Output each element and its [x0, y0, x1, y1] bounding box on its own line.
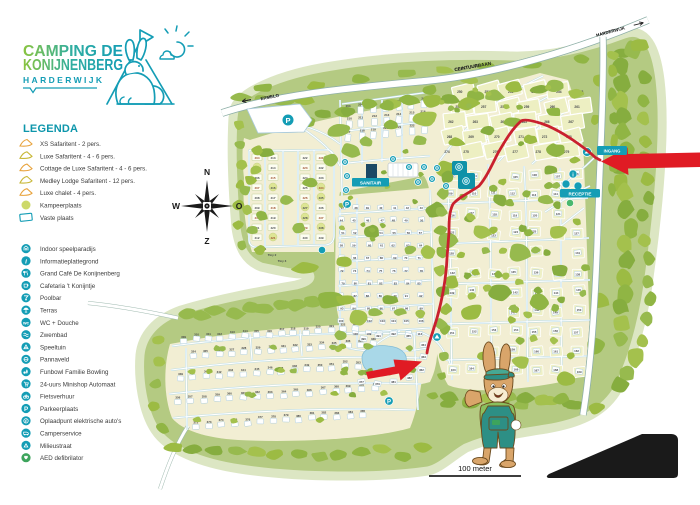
svg-text:54: 54 [379, 231, 383, 235]
svg-text:381: 381 [391, 380, 396, 384]
svg-text:59: 59 [352, 244, 356, 248]
svg-text:98: 98 [405, 307, 409, 311]
svg-text:68: 68 [380, 256, 384, 260]
svg-text:LEGENDA: LEGENDA [23, 123, 78, 135]
svg-text:365: 365 [293, 388, 298, 392]
svg-text:317: 317 [279, 327, 284, 331]
svg-text:135: 135 [511, 270, 516, 274]
svg-text:132: 132 [450, 271, 455, 275]
svg-text:315: 315 [254, 329, 259, 333]
svg-text:RECEPTIE: RECEPTIE [569, 192, 592, 197]
svg-text:423: 423 [302, 166, 307, 170]
svg-text:350: 350 [318, 363, 323, 367]
svg-text:435: 435 [318, 196, 323, 200]
svg-text:357: 357 [188, 395, 193, 399]
svg-text:353: 353 [356, 360, 361, 364]
svg-text:112: 112 [510, 191, 515, 195]
svg-text:162: 162 [574, 349, 579, 353]
svg-text:412: 412 [254, 236, 259, 240]
svg-text:316: 316 [267, 329, 272, 333]
svg-text:97: 97 [392, 307, 396, 311]
svg-text:50: 50 [420, 218, 424, 222]
svg-text:392: 392 [391, 332, 396, 336]
svg-text:124: 124 [513, 230, 518, 234]
svg-text:46: 46 [366, 218, 370, 222]
svg-text:311: 311 [206, 332, 211, 336]
svg-text:342: 342 [217, 370, 222, 374]
svg-text:211: 211 [358, 116, 363, 120]
svg-text:51: 51 [341, 231, 345, 235]
svg-text:159: 159 [510, 348, 515, 352]
svg-text:76: 76 [392, 269, 396, 273]
svg-text:356: 356 [175, 396, 180, 400]
svg-text:151: 151 [450, 331, 455, 335]
svg-text:152: 152 [472, 330, 477, 334]
svg-text:128: 128 [449, 251, 454, 255]
svg-text:430: 430 [302, 236, 307, 240]
svg-text:359: 359 [215, 393, 220, 397]
svg-text:70: 70 [404, 256, 408, 260]
svg-text:169: 169 [577, 370, 582, 374]
svg-text:89: 89 [379, 294, 383, 298]
svg-text:71: 71 [418, 256, 422, 260]
svg-text:259: 259 [524, 105, 530, 109]
svg-text:374: 374 [219, 418, 224, 422]
svg-text:Vaste plaats: Vaste plaats [40, 215, 74, 222]
svg-text:382: 382 [321, 411, 326, 415]
svg-text:339: 339 [178, 372, 183, 376]
svg-text:163: 163 [451, 368, 456, 372]
svg-text:433: 433 [318, 176, 323, 180]
svg-text:219: 219 [371, 127, 376, 131]
svg-text:106: 106 [419, 319, 424, 323]
svg-text:P: P [345, 203, 349, 209]
svg-text:275: 275 [463, 150, 469, 154]
svg-text:250: 250 [457, 90, 463, 94]
svg-text:431: 431 [318, 156, 323, 160]
svg-text:39: 39 [366, 206, 370, 210]
svg-text:138: 138 [575, 272, 580, 276]
svg-text:362: 362 [255, 390, 260, 394]
svg-text:167: 167 [534, 369, 539, 373]
svg-text:74: 74 [366, 269, 370, 273]
svg-text:327: 327 [229, 348, 234, 352]
svg-text:INGANG: INGANG [604, 149, 621, 154]
svg-text:212: 212 [372, 114, 377, 118]
svg-text:161: 161 [553, 350, 558, 354]
svg-text:408: 408 [254, 196, 259, 200]
svg-text:75: 75 [379, 269, 383, 273]
svg-text:309: 309 [181, 335, 186, 339]
svg-text:93: 93 [340, 307, 344, 311]
svg-text:351: 351 [329, 362, 334, 366]
svg-text:418: 418 [270, 206, 275, 210]
svg-text:103: 103 [380, 319, 385, 323]
svg-text:333: 333 [307, 342, 312, 346]
svg-text:336: 336 [346, 339, 351, 343]
svg-text:417: 417 [270, 196, 275, 200]
svg-text:144: 144 [554, 291, 559, 295]
svg-text:377: 377 [258, 415, 263, 419]
svg-text:88: 88 [366, 294, 370, 298]
svg-text:332: 332 [293, 343, 298, 347]
svg-text:Grand Café De Konijnenberg: Grand Café De Konijnenberg [40, 271, 120, 278]
svg-text:66: 66 [353, 256, 357, 260]
svg-text:121: 121 [556, 212, 561, 216]
svg-text:40: 40 [379, 206, 383, 210]
svg-text:140: 140 [469, 288, 474, 292]
svg-text:214: 214 [396, 112, 401, 116]
svg-text:119: 119 [512, 214, 517, 218]
svg-text:432: 432 [318, 166, 323, 170]
svg-text:104: 104 [391, 319, 396, 323]
svg-text:142: 142 [513, 290, 518, 294]
svg-text:47: 47 [380, 218, 384, 222]
svg-text:113: 113 [532, 193, 537, 197]
svg-text:279: 279 [564, 150, 570, 154]
svg-text:382: 382 [407, 376, 412, 380]
svg-text:81: 81 [368, 281, 372, 285]
svg-text:368: 368 [334, 385, 339, 389]
svg-text:379: 379 [284, 413, 289, 417]
svg-text:365: 365 [406, 334, 411, 338]
svg-text:362: 362 [419, 368, 424, 372]
svg-text:105: 105 [404, 319, 409, 323]
svg-text:369: 369 [346, 384, 351, 388]
svg-text:38: 38 [354, 206, 358, 210]
svg-text:Luxe chalet - 4 pers.: Luxe chalet - 4 pers. [40, 190, 96, 197]
svg-text:24-uurs Minishop Automaat: 24-uurs Minishop Automaat [40, 381, 116, 388]
svg-text:363: 363 [268, 390, 273, 394]
svg-text:118: 118 [492, 212, 497, 216]
svg-text:64: 64 [419, 244, 423, 248]
svg-text:271: 271 [519, 135, 525, 139]
svg-text:222: 222 [410, 124, 415, 128]
svg-text:N: N [204, 167, 210, 177]
svg-text:Milieustraat: Milieustraat [40, 443, 72, 450]
svg-text:45: 45 [352, 218, 356, 222]
svg-text:360: 360 [227, 392, 232, 396]
svg-text:69: 69 [393, 256, 397, 260]
svg-text:385: 385 [360, 409, 365, 413]
svg-text:Terras: Terras [40, 308, 57, 315]
svg-text:58: 58 [340, 244, 344, 248]
svg-text:57: 57 [419, 231, 423, 235]
svg-text:160: 160 [534, 349, 539, 353]
svg-text:Parkeerplaats: Parkeerplaats [40, 406, 78, 413]
svg-text:427: 427 [302, 206, 307, 210]
svg-text:310: 310 [194, 332, 199, 336]
svg-text:416: 416 [270, 186, 275, 190]
svg-text:268: 268 [447, 135, 453, 139]
svg-text:213: 213 [384, 113, 389, 117]
svg-text:154: 154 [513, 328, 518, 332]
svg-text:82: 82 [379, 281, 383, 285]
svg-text:XS Safaritent - 2 pers.: XS Safaritent - 2 pers. [40, 141, 101, 148]
svg-text:318: 318 [291, 327, 296, 331]
svg-text:Pannaveld: Pannaveld [40, 357, 70, 364]
svg-text:373: 373 [207, 420, 212, 424]
svg-text:267: 267 [568, 120, 574, 124]
svg-text:270: 270 [494, 135, 500, 139]
svg-text:383: 383 [334, 411, 339, 415]
svg-text:358: 358 [202, 395, 207, 399]
svg-text:136: 136 [534, 271, 539, 275]
svg-text:407: 407 [254, 186, 259, 190]
svg-text:380: 380 [296, 414, 301, 418]
svg-text:107: 107 [555, 174, 560, 178]
svg-text:41: 41 [393, 206, 397, 210]
svg-text:Cottage de Luxe Safaritent - 4: Cottage de Luxe Safaritent - 4 - 6 pers. [40, 166, 147, 173]
svg-text:Tiny 2: Tiny 2 [268, 253, 277, 257]
svg-text:334: 334 [319, 341, 324, 345]
svg-text:O: O [236, 201, 243, 211]
svg-text:157: 157 [573, 331, 578, 335]
svg-text:262: 262 [448, 120, 454, 124]
svg-text:376: 376 [245, 417, 250, 421]
svg-text:79: 79 [341, 281, 345, 285]
svg-text:348: 348 [292, 364, 297, 368]
svg-text:210: 210 [347, 117, 352, 121]
svg-text:131: 131 [575, 251, 580, 255]
svg-text:61: 61 [380, 244, 384, 248]
svg-text:Poolbar: Poolbar [40, 295, 61, 302]
svg-text:420: 420 [270, 226, 275, 230]
svg-text:419: 419 [270, 216, 275, 220]
svg-text:438: 438 [318, 226, 323, 230]
svg-text:312: 312 [217, 332, 222, 336]
svg-text:102: 102 [367, 319, 372, 323]
svg-text:168: 168 [553, 368, 558, 372]
svg-text:344: 344 [241, 368, 246, 372]
svg-text:436: 436 [318, 206, 323, 210]
svg-text:80: 80 [354, 281, 358, 285]
svg-text:48: 48 [392, 218, 396, 222]
svg-text:i: i [25, 259, 27, 266]
svg-text:P: P [387, 400, 391, 406]
svg-text:Z: Z [204, 236, 209, 246]
svg-text:218: 218 [360, 129, 365, 133]
svg-text:87: 87 [353, 294, 357, 298]
svg-text:349: 349 [304, 363, 309, 367]
svg-text:425: 425 [302, 186, 307, 190]
svg-text:P: P [24, 406, 28, 413]
svg-text:HARDERWIJK: HARDERWIJK [23, 75, 104, 85]
svg-text:278: 278 [536, 150, 542, 154]
svg-text:313: 313 [230, 330, 235, 334]
svg-text:Speeltuin: Speeltuin [40, 344, 66, 351]
svg-text:Indoor speelparadijs: Indoor speelparadijs [40, 246, 96, 253]
svg-text:277: 277 [513, 150, 519, 154]
svg-text:263: 263 [473, 120, 479, 124]
svg-text:364: 364 [281, 390, 286, 394]
svg-text:363: 363 [421, 355, 426, 359]
svg-text:346: 346 [268, 366, 273, 370]
svg-text:W: W [172, 201, 181, 211]
svg-text:428: 428 [302, 216, 307, 220]
svg-text:Funbowl Familie Bowling: Funbowl Familie Bowling [40, 369, 109, 376]
svg-text:73: 73 [353, 269, 357, 273]
svg-text:366: 366 [307, 388, 312, 392]
svg-text:AED defibrilator: AED defibrilator [40, 455, 83, 462]
svg-text:42: 42 [406, 206, 410, 210]
svg-text:Fietsverhuur: Fietsverhuur [40, 394, 74, 401]
svg-text:314: 314 [243, 329, 248, 333]
svg-text:113: 113 [417, 332, 422, 336]
svg-text:377: 377 [359, 380, 364, 384]
svg-text:272: 272 [542, 135, 548, 139]
svg-text:52: 52 [353, 231, 357, 235]
svg-text:P: P [285, 116, 290, 125]
svg-text:409: 409 [254, 206, 259, 210]
svg-text:269: 269 [468, 135, 474, 139]
svg-text:324: 324 [191, 350, 196, 354]
svg-text:67: 67 [366, 256, 370, 260]
svg-text:Zwembad: Zwembad [40, 332, 68, 339]
svg-text:378: 378 [271, 414, 276, 418]
svg-text:257: 257 [481, 105, 487, 109]
svg-text:331: 331 [281, 344, 286, 348]
svg-text:261: 261 [574, 105, 580, 109]
svg-text:437: 437 [318, 216, 323, 220]
svg-text:100 meter: 100 meter [458, 464, 492, 473]
svg-text:Medley Lodge Safaritent - 12 p: Medley Lodge Safaritent - 12 pers. [40, 178, 135, 185]
svg-text:215: 215 [409, 111, 414, 115]
svg-text:106: 106 [532, 173, 537, 177]
svg-text:127: 127 [574, 232, 579, 236]
svg-text:43: 43 [420, 206, 424, 210]
svg-text:60: 60 [368, 244, 372, 248]
svg-text:329: 329 [256, 345, 261, 349]
svg-text:Luxe Safaritent - 4 - 6 pers.: Luxe Safaritent - 4 - 6 pers. [40, 153, 115, 160]
svg-text:55: 55 [392, 231, 396, 235]
svg-text:384: 384 [348, 410, 353, 414]
svg-text:322: 322 [340, 323, 345, 327]
svg-text:108: 108 [353, 332, 358, 336]
svg-text:335: 335 [332, 341, 337, 345]
svg-text:390: 390 [361, 337, 366, 341]
svg-text:Informatieplattegrond: Informatieplattegrond [40, 258, 99, 265]
svg-text:84: 84 [406, 281, 410, 285]
svg-text:SANITAIR: SANITAIR [360, 181, 382, 186]
svg-text:156: 156 [553, 329, 558, 333]
svg-text:120: 120 [532, 214, 537, 218]
svg-text:KONIJNENBERG: KONIJNENBERG [23, 57, 123, 74]
svg-text:352: 352 [343, 360, 348, 364]
svg-text:114: 114 [553, 192, 558, 196]
svg-text:319: 319 [304, 327, 309, 331]
svg-text:364: 364 [421, 343, 426, 347]
svg-text:91: 91 [405, 294, 409, 298]
svg-text:345: 345 [254, 367, 259, 371]
svg-text:109: 109 [366, 332, 371, 336]
svg-text:320: 320 [316, 325, 321, 329]
svg-text:426: 426 [302, 196, 307, 200]
svg-text:Cafetaria 't Konijntje: Cafetaria 't Konijntje [40, 283, 96, 290]
svg-text:415: 415 [270, 176, 275, 180]
svg-text:414: 414 [270, 166, 275, 170]
svg-text:110: 110 [472, 192, 477, 196]
svg-text:379: 379 [375, 382, 380, 386]
svg-text:83: 83 [394, 281, 398, 285]
svg-text:62: 62 [391, 244, 395, 248]
svg-text:Tiny 3: Tiny 3 [278, 259, 287, 263]
svg-text:155: 155 [532, 330, 537, 334]
svg-text:139: 139 [450, 291, 455, 295]
svg-text:422: 422 [302, 156, 307, 160]
svg-text:413: 413 [270, 156, 275, 160]
svg-text:381: 381 [310, 411, 315, 415]
svg-text:WC + Douche: WC + Douche [40, 320, 79, 327]
svg-text:391: 391 [376, 334, 381, 338]
svg-text:Camperservice: Camperservice [40, 431, 82, 438]
svg-text:328: 328 [241, 346, 246, 350]
svg-text:77: 77 [404, 269, 408, 273]
svg-text:153: 153 [491, 328, 496, 332]
svg-text:325: 325 [203, 349, 208, 353]
svg-text:439: 439 [318, 236, 323, 240]
svg-text:166: 166 [513, 368, 518, 372]
svg-text:321: 321 [329, 324, 334, 328]
svg-text:421: 421 [270, 236, 275, 240]
svg-text:343: 343 [228, 368, 233, 372]
svg-text:105: 105 [513, 175, 518, 179]
svg-text:78: 78 [420, 269, 424, 273]
svg-text:367: 367 [321, 386, 326, 390]
svg-text:404: 404 [254, 156, 259, 160]
svg-text:44: 44 [340, 218, 344, 222]
svg-text:72: 72 [340, 269, 344, 273]
svg-text:85: 85 [417, 281, 421, 285]
svg-text:150: 150 [577, 308, 582, 312]
svg-text:49: 49 [404, 218, 408, 222]
svg-text:274: 274 [444, 150, 450, 154]
svg-text:164: 164 [469, 366, 474, 370]
svg-text:Oplaadpunt elektrische auto's: Oplaadpunt elektrische auto's [40, 418, 121, 425]
svg-text:96: 96 [380, 307, 384, 311]
svg-text:92: 92 [419, 294, 423, 298]
svg-text:434: 434 [318, 186, 323, 190]
svg-text:56: 56 [407, 231, 411, 235]
svg-text:wc: wc [22, 320, 30, 325]
svg-text:Kampeerplaats: Kampeerplaats [40, 203, 82, 210]
